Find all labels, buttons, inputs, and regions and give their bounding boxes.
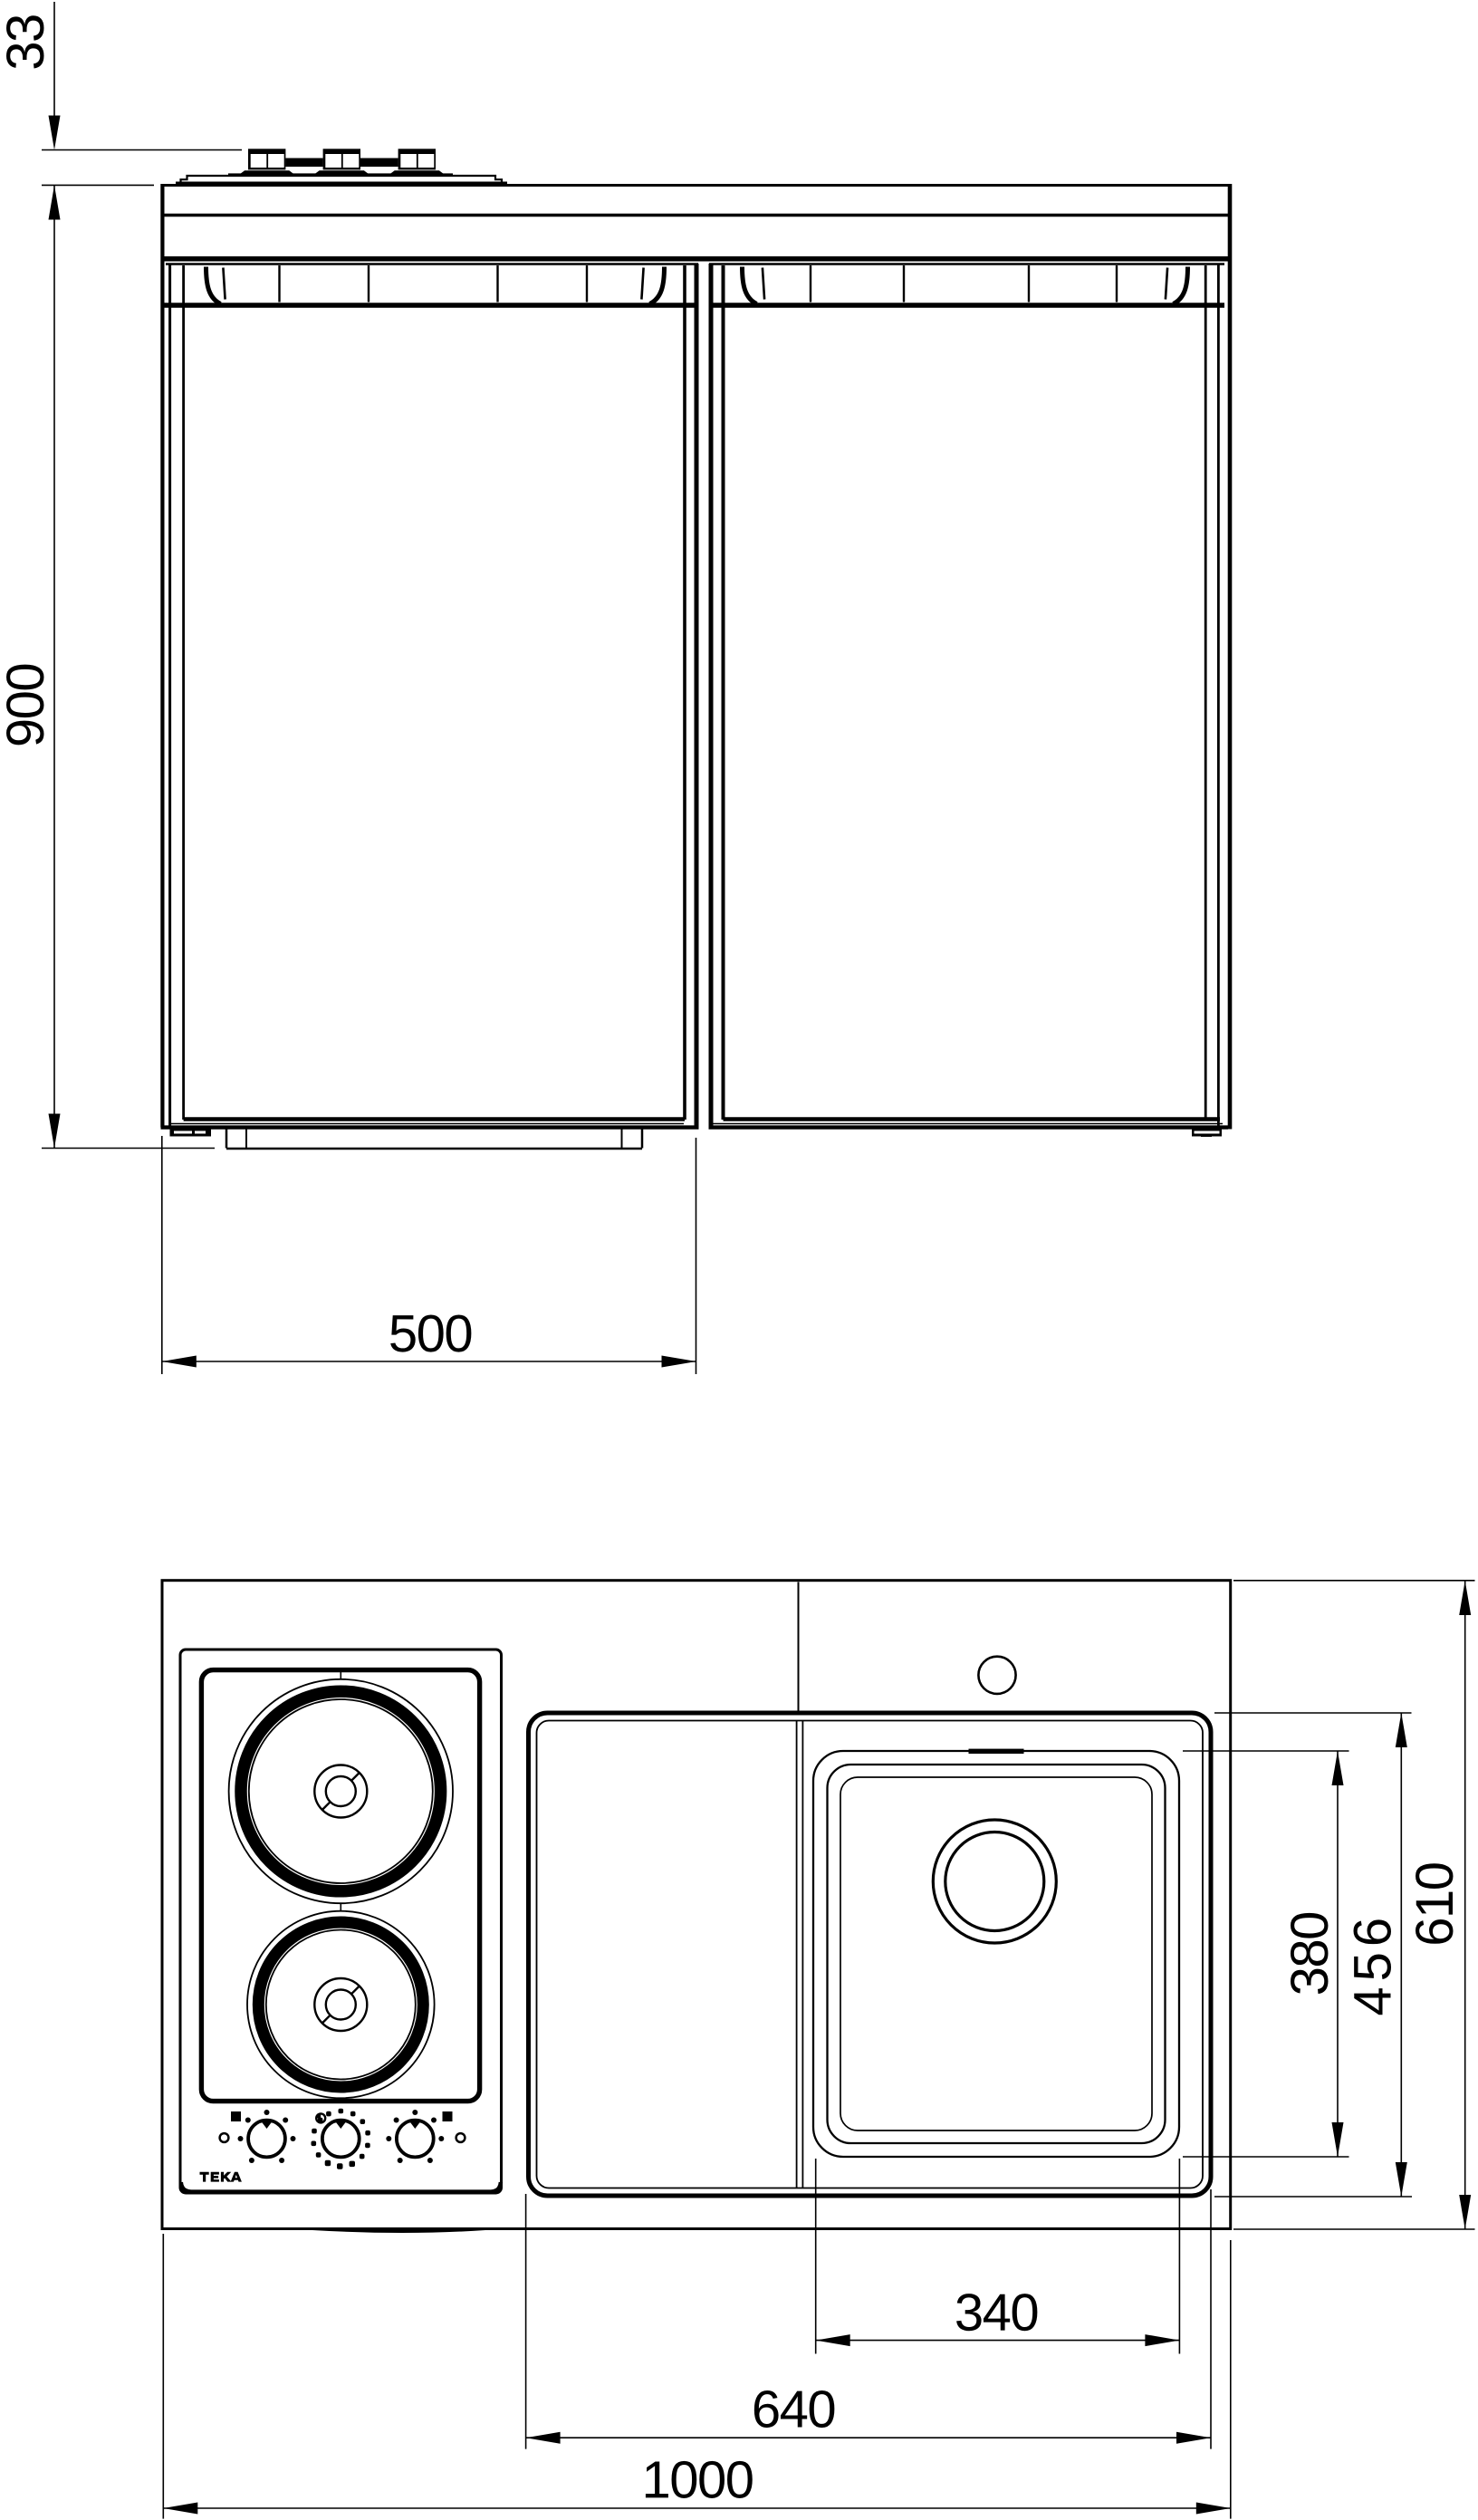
- svg-text:900: 900: [0, 664, 55, 747]
- svg-text:500: 500: [389, 1304, 472, 1363]
- svg-text:456: 456: [1343, 1912, 1402, 2016]
- svg-text:1000: 1000: [641, 2450, 753, 2509]
- svg-text:640: 640: [752, 2380, 835, 2438]
- svg-text:380: 380: [1281, 1912, 1339, 1996]
- svg-text:610: 610: [1406, 1862, 1464, 1946]
- svg-text:33: 33: [0, 14, 55, 71]
- svg-text:340: 340: [955, 2284, 1038, 2342]
